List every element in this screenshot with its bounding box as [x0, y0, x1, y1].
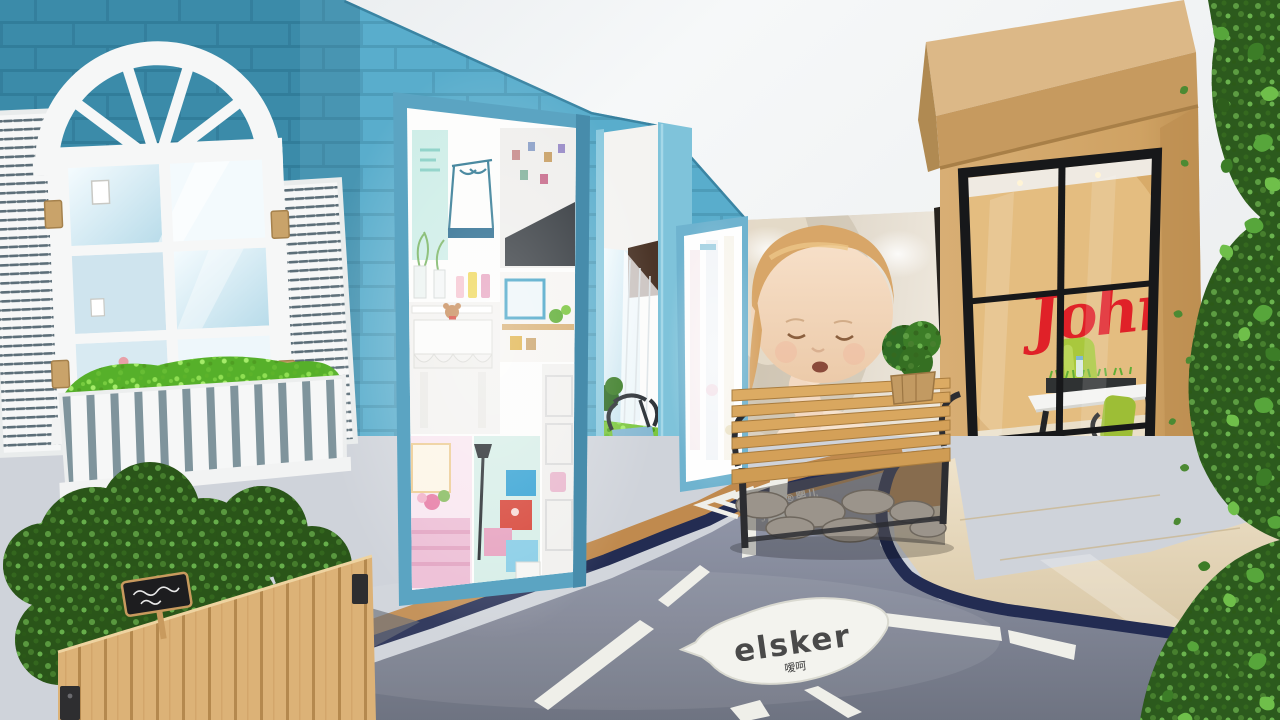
scene-canvas: John — [0, 0, 1280, 720]
store-interior-render: John — [0, 0, 1280, 720]
plant-pot — [891, 372, 935, 404]
planter-bracket2 — [352, 574, 368, 604]
bottle-cap — [1076, 356, 1083, 360]
lightbox-large — [322, 60, 662, 640]
interior-light2 — [1095, 172, 1101, 178]
lightbox-small — [668, 214, 760, 494]
lightbox2-glow — [668, 214, 760, 494]
pane-photo-frame — [92, 180, 110, 204]
baby-mouth — [812, 362, 828, 373]
cheek-right — [843, 343, 865, 365]
water-bottle — [1076, 358, 1083, 377]
pane-photo-frame2 — [91, 299, 105, 317]
cheek-left — [775, 341, 797, 363]
interior-light — [1017, 180, 1023, 186]
bracket-screw — [68, 694, 73, 699]
planter-bracket — [60, 686, 80, 720]
